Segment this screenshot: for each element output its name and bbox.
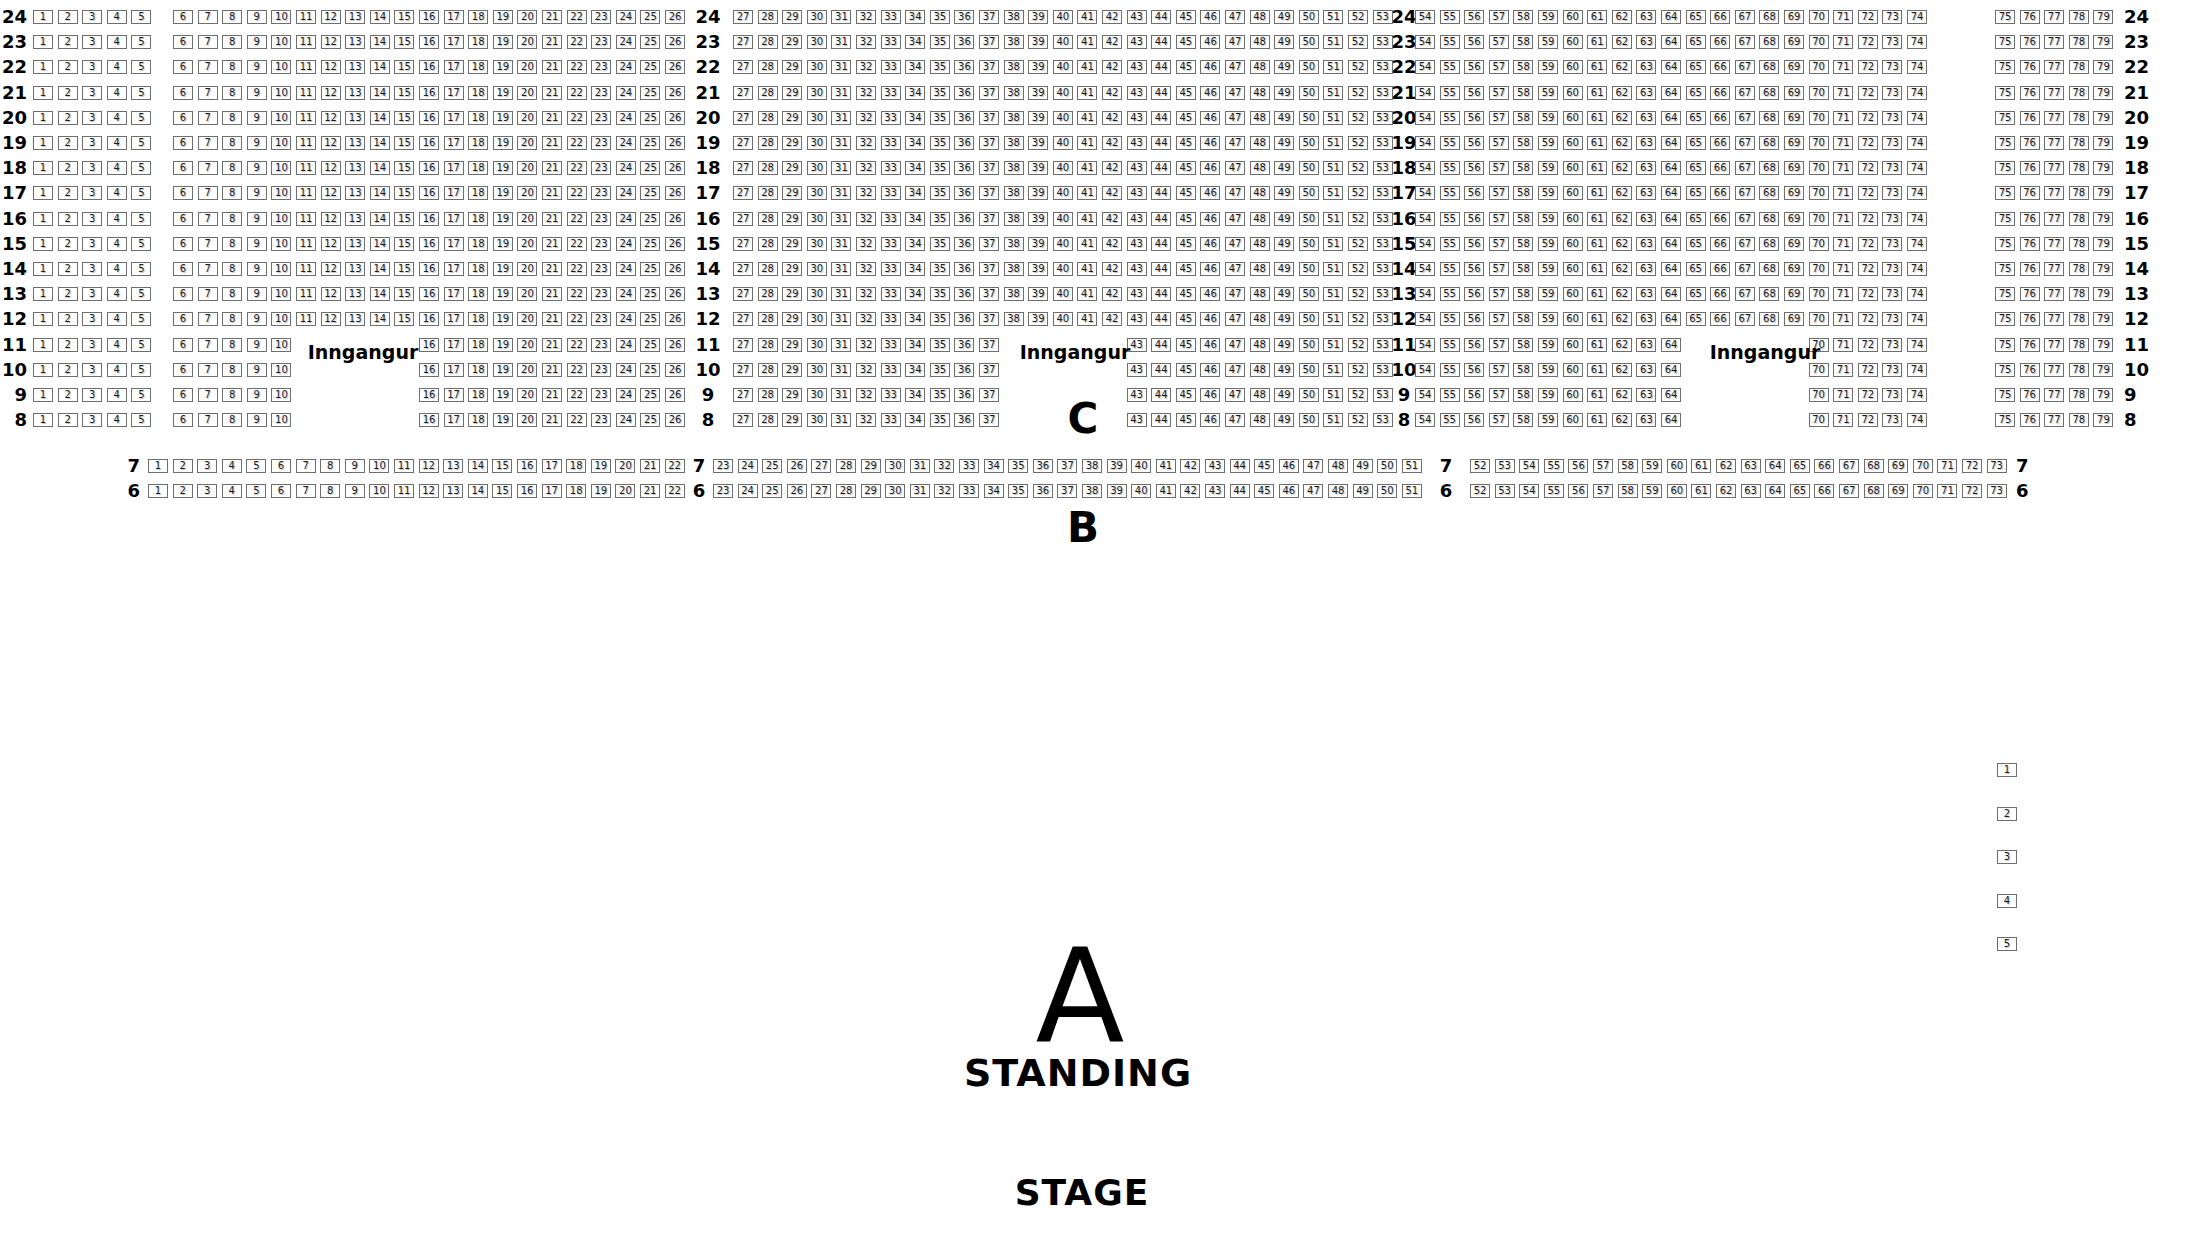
seat[interactable]: 34	[984, 484, 1004, 498]
seat[interactable]: 7	[198, 388, 218, 402]
seat[interactable]: 27	[733, 287, 753, 301]
seat[interactable]: 27	[733, 388, 753, 402]
seat[interactable]: 66	[1710, 287, 1730, 301]
seat[interactable]: 44	[1151, 312, 1171, 326]
seat[interactable]: 31	[831, 60, 851, 74]
seat[interactable]: 57	[1489, 136, 1509, 150]
seat[interactable]: 59	[1538, 10, 1558, 24]
seat[interactable]: 36	[954, 10, 974, 24]
seat[interactable]: 53	[1373, 111, 1393, 125]
seat[interactable]: 36	[954, 237, 974, 251]
seat[interactable]: 15	[394, 161, 414, 175]
seat[interactable]: 62	[1612, 35, 1632, 49]
seat[interactable]: 54	[1415, 10, 1435, 24]
seat[interactable]: 24	[616, 212, 636, 226]
seat[interactable]: 68	[1759, 212, 1779, 226]
seat[interactable]: 15	[394, 186, 414, 200]
seat[interactable]: 61	[1587, 35, 1607, 49]
seat[interactable]: 4	[107, 262, 127, 276]
seat[interactable]: 35	[930, 363, 950, 377]
seat[interactable]: 5	[131, 363, 151, 377]
seat[interactable]: 17	[444, 86, 464, 100]
seat[interactable]: 29	[782, 262, 802, 276]
seat[interactable]: 15	[394, 60, 414, 74]
seat[interactable]: 31	[831, 262, 851, 276]
seat[interactable]: 77	[2044, 35, 2064, 49]
seat[interactable]: 26	[665, 161, 685, 175]
seat[interactable]: 57	[1489, 388, 1509, 402]
seat[interactable]: 56	[1464, 136, 1484, 150]
seat[interactable]: 34	[905, 10, 925, 24]
seat[interactable]: 78	[2069, 312, 2089, 326]
seat[interactable]: 22	[567, 136, 587, 150]
seat[interactable]: 64	[1661, 136, 1681, 150]
seat[interactable]: 72	[1962, 459, 1982, 473]
seat[interactable]: 2	[58, 136, 78, 150]
seat[interactable]: 41	[1077, 86, 1097, 100]
seat[interactable]: 60	[1563, 312, 1583, 326]
seat[interactable]: 49	[1274, 86, 1294, 100]
seat[interactable]: 79	[2093, 111, 2113, 125]
seat[interactable]: 32	[856, 388, 876, 402]
seat[interactable]: 7	[198, 312, 218, 326]
seat[interactable]: 38	[1004, 287, 1024, 301]
seat[interactable]: 59	[1538, 363, 1558, 377]
seat[interactable]: 37	[979, 363, 999, 377]
seat[interactable]: 16	[419, 287, 439, 301]
seat[interactable]: 5	[246, 459, 266, 473]
seat[interactable]: 69	[1784, 161, 1804, 175]
seat[interactable]: 58	[1618, 459, 1638, 473]
seat[interactable]: 35	[930, 161, 950, 175]
seat[interactable]: 58	[1513, 186, 1533, 200]
seat[interactable]: 74	[1907, 111, 1927, 125]
seat[interactable]: 12	[321, 287, 341, 301]
seat[interactable]: 47	[1225, 338, 1245, 352]
seat[interactable]: 63	[1636, 136, 1656, 150]
seat[interactable]: 65	[1686, 60, 1706, 74]
seat[interactable]: 58	[1513, 287, 1533, 301]
seat[interactable]: 39	[1028, 35, 1048, 49]
side-seat[interactable]: 3	[1997, 850, 2017, 864]
seat[interactable]: 47	[1225, 388, 1245, 402]
seat[interactable]: 47	[1303, 459, 1323, 473]
seat[interactable]: 49	[1274, 186, 1294, 200]
seat[interactable]: 9	[247, 86, 267, 100]
seat[interactable]: 70	[1809, 161, 1829, 175]
seat[interactable]: 57	[1489, 35, 1509, 49]
seat[interactable]: 17	[444, 60, 464, 74]
seat[interactable]: 55	[1440, 10, 1460, 24]
seat[interactable]: 44	[1151, 86, 1171, 100]
seat[interactable]: 77	[2044, 161, 2064, 175]
seat[interactable]: 50	[1299, 388, 1319, 402]
seat[interactable]: 7	[198, 111, 218, 125]
seat[interactable]: 20	[517, 186, 537, 200]
seat[interactable]: 28	[758, 60, 778, 74]
seat[interactable]: 58	[1513, 10, 1533, 24]
seat[interactable]: 22	[567, 363, 587, 377]
seat[interactable]: 67	[1735, 237, 1755, 251]
seat[interactable]: 55	[1440, 262, 1460, 276]
seat[interactable]: 24	[616, 338, 636, 352]
seat[interactable]: 79	[2093, 413, 2113, 427]
seat[interactable]: 5	[131, 35, 151, 49]
seat[interactable]: 12	[321, 111, 341, 125]
seat[interactable]: 66	[1710, 86, 1730, 100]
seat[interactable]: 9	[345, 459, 365, 473]
seat[interactable]: 72	[1858, 35, 1878, 49]
seat[interactable]: 3	[82, 10, 102, 24]
seat[interactable]: 57	[1489, 111, 1509, 125]
seat[interactable]: 5	[131, 212, 151, 226]
seat[interactable]: 19	[493, 363, 513, 377]
seat[interactable]: 24	[616, 388, 636, 402]
seat[interactable]: 48	[1250, 237, 1270, 251]
seat[interactable]: 4	[107, 136, 127, 150]
seat[interactable]: 46	[1279, 459, 1299, 473]
seat[interactable]: 43	[1127, 212, 1147, 226]
seat[interactable]: 26	[665, 388, 685, 402]
seat[interactable]: 72	[1858, 338, 1878, 352]
seat[interactable]: 38	[1004, 262, 1024, 276]
seat[interactable]: 9	[247, 136, 267, 150]
seat[interactable]: 69	[1784, 186, 1804, 200]
seat[interactable]: 36	[954, 136, 974, 150]
seat[interactable]: 34	[905, 111, 925, 125]
seat[interactable]: 34	[905, 363, 925, 377]
seat[interactable]: 9	[247, 338, 267, 352]
seat[interactable]: 31	[831, 287, 851, 301]
seat[interactable]: 46	[1200, 186, 1220, 200]
seat[interactable]: 56	[1464, 35, 1484, 49]
seat[interactable]: 29	[782, 413, 802, 427]
seat[interactable]: 9	[247, 10, 267, 24]
seat[interactable]: 49	[1274, 338, 1294, 352]
seat[interactable]: 39	[1028, 262, 1048, 276]
seat[interactable]: 50	[1299, 312, 1319, 326]
seat[interactable]: 49	[1274, 212, 1294, 226]
seat[interactable]: 64	[1661, 212, 1681, 226]
seat[interactable]: 7	[198, 413, 218, 427]
seat[interactable]: 9	[247, 35, 267, 49]
seat[interactable]: 63	[1636, 186, 1656, 200]
seat[interactable]: 56	[1464, 60, 1484, 74]
seat[interactable]: 24	[616, 237, 636, 251]
seat[interactable]: 1	[33, 287, 53, 301]
seat[interactable]: 62	[1612, 186, 1632, 200]
seat[interactable]: 28	[758, 111, 778, 125]
seat[interactable]: 64	[1661, 237, 1681, 251]
seat[interactable]: 77	[2044, 212, 2064, 226]
seat[interactable]: 21	[542, 10, 562, 24]
seat[interactable]: 4	[107, 413, 127, 427]
seat[interactable]: 46	[1200, 212, 1220, 226]
seat[interactable]: 12	[321, 237, 341, 251]
seat[interactable]: 9	[247, 186, 267, 200]
seat[interactable]: 22	[567, 388, 587, 402]
seat[interactable]: 64	[1661, 111, 1681, 125]
seat[interactable]: 19	[493, 262, 513, 276]
seat[interactable]: 5	[131, 161, 151, 175]
seat[interactable]: 3	[82, 161, 102, 175]
seat[interactable]: 57	[1489, 287, 1509, 301]
seat[interactable]: 8	[222, 338, 242, 352]
seat[interactable]: 24	[616, 60, 636, 74]
seat[interactable]: 14	[370, 186, 390, 200]
seat[interactable]: 71	[1833, 161, 1853, 175]
seat[interactable]: 27	[733, 413, 753, 427]
seat[interactable]: 77	[2044, 10, 2064, 24]
seat[interactable]: 43	[1127, 86, 1147, 100]
seat[interactable]: 60	[1563, 86, 1583, 100]
seat[interactable]: 49	[1353, 459, 1373, 473]
seat[interactable]: 71	[1833, 237, 1853, 251]
seat[interactable]: 28	[758, 338, 778, 352]
seat[interactable]: 70	[1809, 60, 1829, 74]
seat[interactable]: 46	[1200, 388, 1220, 402]
seat[interactable]: 76	[2020, 60, 2040, 74]
seat[interactable]: 43	[1127, 10, 1147, 24]
seat[interactable]: 75	[1995, 338, 2015, 352]
seat[interactable]: 67	[1735, 86, 1755, 100]
seat[interactable]: 16	[419, 338, 439, 352]
seat[interactable]: 47	[1225, 287, 1245, 301]
seat[interactable]: 74	[1907, 212, 1927, 226]
seat[interactable]: 29	[782, 10, 802, 24]
seat[interactable]: 50	[1299, 287, 1319, 301]
seat[interactable]: 53	[1373, 60, 1393, 74]
seat[interactable]: 5	[131, 388, 151, 402]
seat[interactable]: 2	[173, 459, 193, 473]
seat[interactable]: 7	[198, 212, 218, 226]
seat[interactable]: 42	[1180, 484, 1200, 498]
seat[interactable]: 52	[1348, 262, 1368, 276]
seat[interactable]: 66	[1710, 312, 1730, 326]
seat[interactable]: 51	[1402, 459, 1422, 473]
seat[interactable]: 39	[1028, 60, 1048, 74]
seat[interactable]: 3	[82, 388, 102, 402]
seat[interactable]: 3	[82, 111, 102, 125]
seat[interactable]: 73	[1987, 459, 2007, 473]
seat[interactable]: 61	[1587, 111, 1607, 125]
seat[interactable]: 45	[1254, 484, 1274, 498]
seat[interactable]: 46	[1200, 413, 1220, 427]
seat[interactable]: 18	[468, 111, 488, 125]
seat[interactable]: 20	[517, 262, 537, 276]
seat[interactable]: 6	[173, 86, 193, 100]
seat[interactable]: 28	[836, 484, 856, 498]
seat[interactable]: 12	[419, 459, 439, 473]
seat[interactable]: 25	[640, 111, 660, 125]
seat[interactable]: 38	[1004, 161, 1024, 175]
seat[interactable]: 47	[1225, 60, 1245, 74]
seat[interactable]: 59	[1538, 413, 1558, 427]
seat[interactable]: 15	[394, 212, 414, 226]
seat[interactable]: 23	[591, 287, 611, 301]
seat[interactable]: 49	[1274, 60, 1294, 74]
seat[interactable]: 56	[1464, 186, 1484, 200]
seat[interactable]: 47	[1225, 86, 1245, 100]
seat[interactable]: 2	[58, 287, 78, 301]
seat[interactable]: 4	[107, 287, 127, 301]
seat[interactable]: 8	[320, 459, 340, 473]
seat[interactable]: 60	[1563, 161, 1583, 175]
seat[interactable]: 74	[1907, 60, 1927, 74]
seat[interactable]: 69	[1784, 287, 1804, 301]
seat[interactable]: 27	[733, 338, 753, 352]
seat[interactable]: 54	[1415, 388, 1435, 402]
seat[interactable]: 68	[1759, 312, 1779, 326]
seat[interactable]: 78	[2069, 287, 2089, 301]
seat[interactable]: 3	[82, 312, 102, 326]
seat[interactable]: 33	[881, 413, 901, 427]
seat[interactable]: 37	[1057, 484, 1077, 498]
seat[interactable]: 24	[616, 287, 636, 301]
seat[interactable]: 70	[1809, 388, 1829, 402]
seat[interactable]: 45	[1176, 212, 1196, 226]
seat[interactable]: 41	[1077, 10, 1097, 24]
seat[interactable]: 35	[1008, 459, 1028, 473]
seat[interactable]: 66	[1710, 60, 1730, 74]
seat[interactable]: 23	[591, 212, 611, 226]
seat[interactable]: 42	[1102, 312, 1122, 326]
seat[interactable]: 35	[930, 262, 950, 276]
seat[interactable]: 6	[173, 212, 193, 226]
seat[interactable]: 30	[807, 312, 827, 326]
seat[interactable]: 57	[1489, 338, 1509, 352]
seat[interactable]: 61	[1587, 413, 1607, 427]
seat[interactable]: 63	[1636, 413, 1656, 427]
seat[interactable]: 6	[173, 10, 193, 24]
seat[interactable]: 75	[1995, 111, 2015, 125]
seat[interactable]: 67	[1839, 459, 1859, 473]
seat[interactable]: 69	[1784, 136, 1804, 150]
seat[interactable]: 57	[1593, 459, 1613, 473]
seat[interactable]: 24	[616, 363, 636, 377]
seat[interactable]: 79	[2093, 363, 2113, 377]
seat[interactable]: 36	[954, 35, 974, 49]
seat[interactable]: 2	[58, 161, 78, 175]
seat[interactable]: 33	[881, 212, 901, 226]
seat[interactable]: 8	[222, 363, 242, 377]
seat[interactable]: 39	[1107, 484, 1127, 498]
seat[interactable]: 1	[33, 262, 53, 276]
seat[interactable]: 52	[1348, 111, 1368, 125]
seat[interactable]: 2	[58, 186, 78, 200]
seat[interactable]: 64	[1765, 459, 1785, 473]
seat[interactable]: 37	[979, 388, 999, 402]
seat[interactable]: 6	[173, 111, 193, 125]
seat[interactable]: 43	[1127, 136, 1147, 150]
seat[interactable]: 59	[1642, 484, 1662, 498]
seat[interactable]: 16	[419, 413, 439, 427]
seat[interactable]: 34	[905, 262, 925, 276]
seat[interactable]: 14	[370, 212, 390, 226]
seat[interactable]: 37	[979, 111, 999, 125]
seat[interactable]: 30	[807, 111, 827, 125]
seat[interactable]: 28	[758, 237, 778, 251]
seat[interactable]: 64	[1661, 363, 1681, 377]
seat[interactable]: 32	[856, 186, 876, 200]
seat[interactable]: 42	[1102, 60, 1122, 74]
seat[interactable]: 23	[591, 237, 611, 251]
seat[interactable]: 46	[1279, 484, 1299, 498]
seat[interactable]: 5	[131, 111, 151, 125]
seat[interactable]: 35	[930, 111, 950, 125]
seat[interactable]: 31	[831, 212, 851, 226]
seat[interactable]: 45	[1176, 186, 1196, 200]
seat[interactable]: 63	[1636, 86, 1656, 100]
seat[interactable]: 43	[1127, 237, 1147, 251]
seat[interactable]: 48	[1250, 35, 1270, 49]
seat[interactable]: 38	[1004, 136, 1024, 150]
seat[interactable]: 26	[665, 136, 685, 150]
seat[interactable]: 49	[1274, 161, 1294, 175]
seat[interactable]: 34	[905, 287, 925, 301]
seat[interactable]: 19	[493, 388, 513, 402]
seat[interactable]: 5	[246, 484, 266, 498]
seat[interactable]: 75	[1995, 312, 2015, 326]
seat[interactable]: 61	[1587, 237, 1607, 251]
seat[interactable]: 26	[665, 237, 685, 251]
seat[interactable]: 35	[930, 388, 950, 402]
seat[interactable]: 9	[247, 111, 267, 125]
seat[interactable]: 3	[82, 237, 102, 251]
seat[interactable]: 49	[1353, 484, 1373, 498]
seat[interactable]: 73	[1882, 363, 1902, 377]
seat[interactable]: 70	[1809, 35, 1829, 49]
seat[interactable]: 73	[1882, 388, 1902, 402]
seat[interactable]: 32	[856, 413, 876, 427]
seat[interactable]: 22	[567, 312, 587, 326]
seat[interactable]: 78	[2069, 212, 2089, 226]
seat[interactable]: 14	[370, 35, 390, 49]
seat[interactable]: 45	[1176, 312, 1196, 326]
seat[interactable]: 58	[1513, 413, 1533, 427]
seat[interactable]: 60	[1563, 363, 1583, 377]
seat[interactable]: 30	[807, 10, 827, 24]
seat[interactable]: 19	[493, 212, 513, 226]
seat[interactable]: 56	[1464, 212, 1484, 226]
seat[interactable]: 36	[954, 338, 974, 352]
seat[interactable]: 18	[468, 186, 488, 200]
seat[interactable]: 58	[1513, 161, 1533, 175]
seat[interactable]: 79	[2093, 60, 2113, 74]
seat[interactable]: 37	[979, 60, 999, 74]
seat[interactable]: 64	[1661, 60, 1681, 74]
seat[interactable]: 78	[2069, 186, 2089, 200]
seat[interactable]: 6	[173, 262, 193, 276]
seat[interactable]: 78	[2069, 60, 2089, 74]
seat[interactable]: 60	[1667, 484, 1687, 498]
seat[interactable]: 67	[1735, 212, 1755, 226]
seat[interactable]: 61	[1587, 86, 1607, 100]
seat[interactable]: 70	[1913, 484, 1933, 498]
seat[interactable]: 36	[1033, 484, 1053, 498]
seat[interactable]: 44	[1151, 212, 1171, 226]
seat[interactable]: 75	[1995, 388, 2015, 402]
seat[interactable]: 78	[2069, 86, 2089, 100]
seat[interactable]: 72	[1858, 111, 1878, 125]
seat[interactable]: 36	[954, 363, 974, 377]
seat[interactable]: 5	[131, 262, 151, 276]
seat[interactable]: 48	[1250, 86, 1270, 100]
seat[interactable]: 15	[394, 312, 414, 326]
seat[interactable]: 27	[733, 312, 753, 326]
seat[interactable]: 78	[2069, 161, 2089, 175]
seat[interactable]: 35	[930, 237, 950, 251]
